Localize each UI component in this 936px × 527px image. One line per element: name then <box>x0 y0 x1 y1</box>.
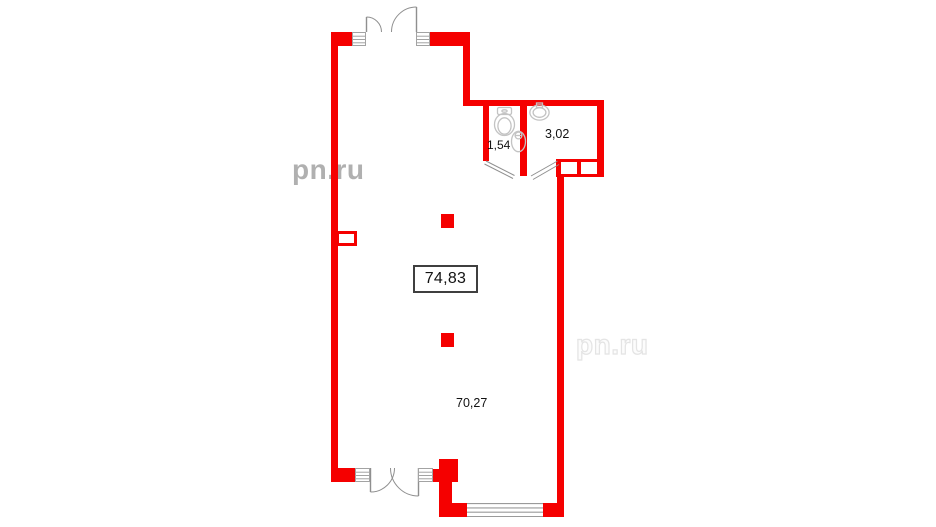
door-jamb-hatch-bottom-left <box>356 469 370 482</box>
washbasin-icon <box>512 131 526 151</box>
door-jamb-hatch-bottom-right <box>419 469 433 482</box>
entrance-door-bottom <box>371 468 419 496</box>
door-arc <box>391 468 419 496</box>
sink-icon <box>530 103 549 120</box>
door-arc <box>367 17 382 32</box>
door-jamb-hatch-top-right <box>417 33 430 46</box>
toilet-icon <box>495 108 515 136</box>
entrance-door-top <box>367 7 417 32</box>
door-arc <box>392 7 417 32</box>
door-jamb-hatch-top-left <box>353 33 366 46</box>
plan-linework <box>0 0 936 527</box>
total-area-value: 74,83 <box>425 270 467 288</box>
bathroom-door-leaf <box>531 161 559 180</box>
wc-area-label: 1,54 <box>487 138 510 152</box>
bathroom-area-label: 3,02 <box>545 127 569 141</box>
window-bottom <box>467 504 543 517</box>
wc-door-leaf <box>485 161 515 179</box>
total-area-box: 74,83 <box>413 265 478 293</box>
floor-plan-canvas: pn.ru pn.ru <box>0 0 936 527</box>
main-room-area-label: 70,27 <box>456 396 487 410</box>
